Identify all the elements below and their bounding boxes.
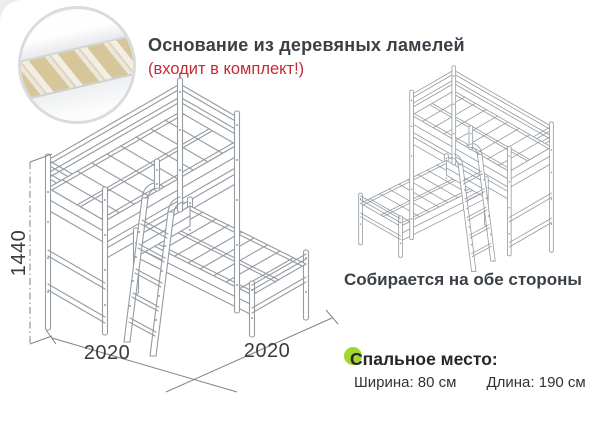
slats-photo-inset [18,6,136,124]
base-title: Основание из деревяных ламелей [148,35,465,56]
width-spec: Ширина: 80 см [354,374,456,391]
length-spec: Длина: 190 см [486,374,585,391]
dim-height-label: 1440 [8,230,30,277]
sleeping-place-heading: Спальное место: [350,349,498,370]
dim-width-right-label: 2020 [244,340,291,362]
included-note: (входит в комплект!) [148,60,304,79]
sleeping-place-specs: Ширина: 80 см Длина: 190 см [354,374,586,391]
dim-width-left-label: 2020 [84,342,131,364]
assemble-both-sides-caption: Собирается на обе стороны [344,270,582,290]
right-bed-drawing [359,66,554,272]
slats-photo-content [18,6,136,124]
